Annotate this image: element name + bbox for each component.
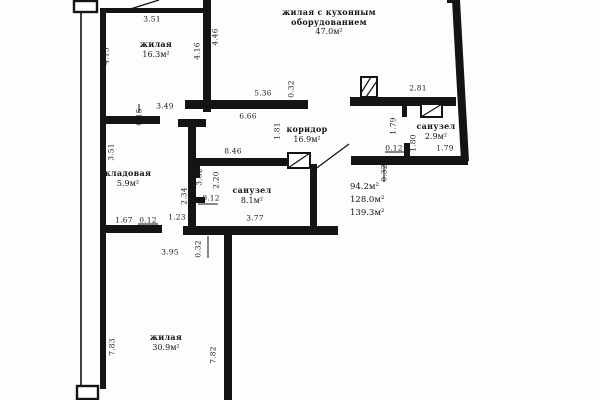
room-name: жилая (106, 333, 226, 343)
wall-room2-bottom-left (185, 100, 308, 109)
wall-san2-stub-top (402, 106, 407, 117)
wall-outer-left (100, 8, 106, 389)
dimension-label: 1.81 (273, 122, 282, 140)
dimension-label: 0.15 (135, 108, 144, 126)
room-area: 47.0м² (269, 27, 389, 37)
floor-plan-page: жилая 16.3м² жилая с кухонным оборудован… (0, 0, 600, 400)
room-area: 5.9м² (68, 179, 188, 189)
area-summary-total: 128.0м² (350, 194, 384, 207)
top-right-tick (447, 0, 455, 3)
room-label-storage: кладовая 5.9м² (68, 169, 188, 189)
bottom-left-block (77, 386, 98, 399)
dimension-label: 0.32 (287, 80, 296, 98)
dimension-label: 0.32 (380, 164, 389, 182)
dimension-label: 2.20 (212, 171, 221, 189)
dimension-label: 0.12 (139, 216, 157, 225)
top-left-block (74, 1, 97, 12)
dimension-label: 3.95 (161, 248, 179, 257)
dimension-label: 7.83 (108, 338, 117, 356)
room-area: 16.9м² (247, 135, 367, 145)
area-summary-living: 94.2м² (350, 181, 384, 194)
dimension-label: 5.36 (254, 89, 272, 98)
wall-room1-bottom (100, 116, 160, 124)
wall-san8-top (194, 158, 290, 166)
room-label-corridor: коридор 16.9м² (247, 125, 367, 145)
room-name: коридор (247, 125, 367, 135)
dimension-label: 2.34 (180, 187, 189, 205)
dimension-label: 0.32 (194, 240, 203, 258)
dimension-label: 3.51 (107, 143, 116, 161)
dimension-label: 1.80 (409, 134, 418, 152)
dimension-label: 1.23 (168, 213, 186, 222)
dimension-label: 0.12 (202, 194, 220, 203)
dimension-label: 1.79 (436, 144, 454, 153)
dimension-label: 4.46 (211, 28, 220, 46)
dimension-label: 3.51 (143, 15, 161, 24)
room-name: оборудованием (269, 18, 389, 28)
wall-san8-bottom (183, 226, 338, 235)
dimension-label: 3.49 (156, 102, 174, 111)
dimension-label: 4.16 (193, 42, 202, 60)
dimension-label: 1.79 (389, 117, 398, 135)
dimension-label: 3.52 (195, 168, 204, 186)
dimension-label: 3.77 (246, 214, 264, 223)
door-swing-line (314, 144, 349, 170)
wall-room1-top (100, 8, 210, 13)
wall-living2-right (224, 235, 232, 400)
dimension-label: 8.46 (224, 147, 242, 156)
room-name: кладовая (68, 169, 188, 179)
dimension-label: 2.81 (409, 84, 427, 93)
dimension-label: 0.12 (385, 144, 403, 153)
dimension-label: 1.67 (115, 216, 133, 225)
area-summary-with-balconies: 139.3м² (350, 207, 384, 220)
area-summary: 94.2м² 128.0м² 139.3м² (350, 181, 384, 220)
wall-storage-bottom (100, 225, 162, 233)
room-label-living-kitchen: жилая с кухонным оборудованием 47.0м² (269, 8, 389, 37)
dimension-label: 7.82 (209, 346, 218, 364)
dimension-label: 6.66 (239, 112, 257, 121)
dimension-label: 4.15 (102, 47, 111, 65)
